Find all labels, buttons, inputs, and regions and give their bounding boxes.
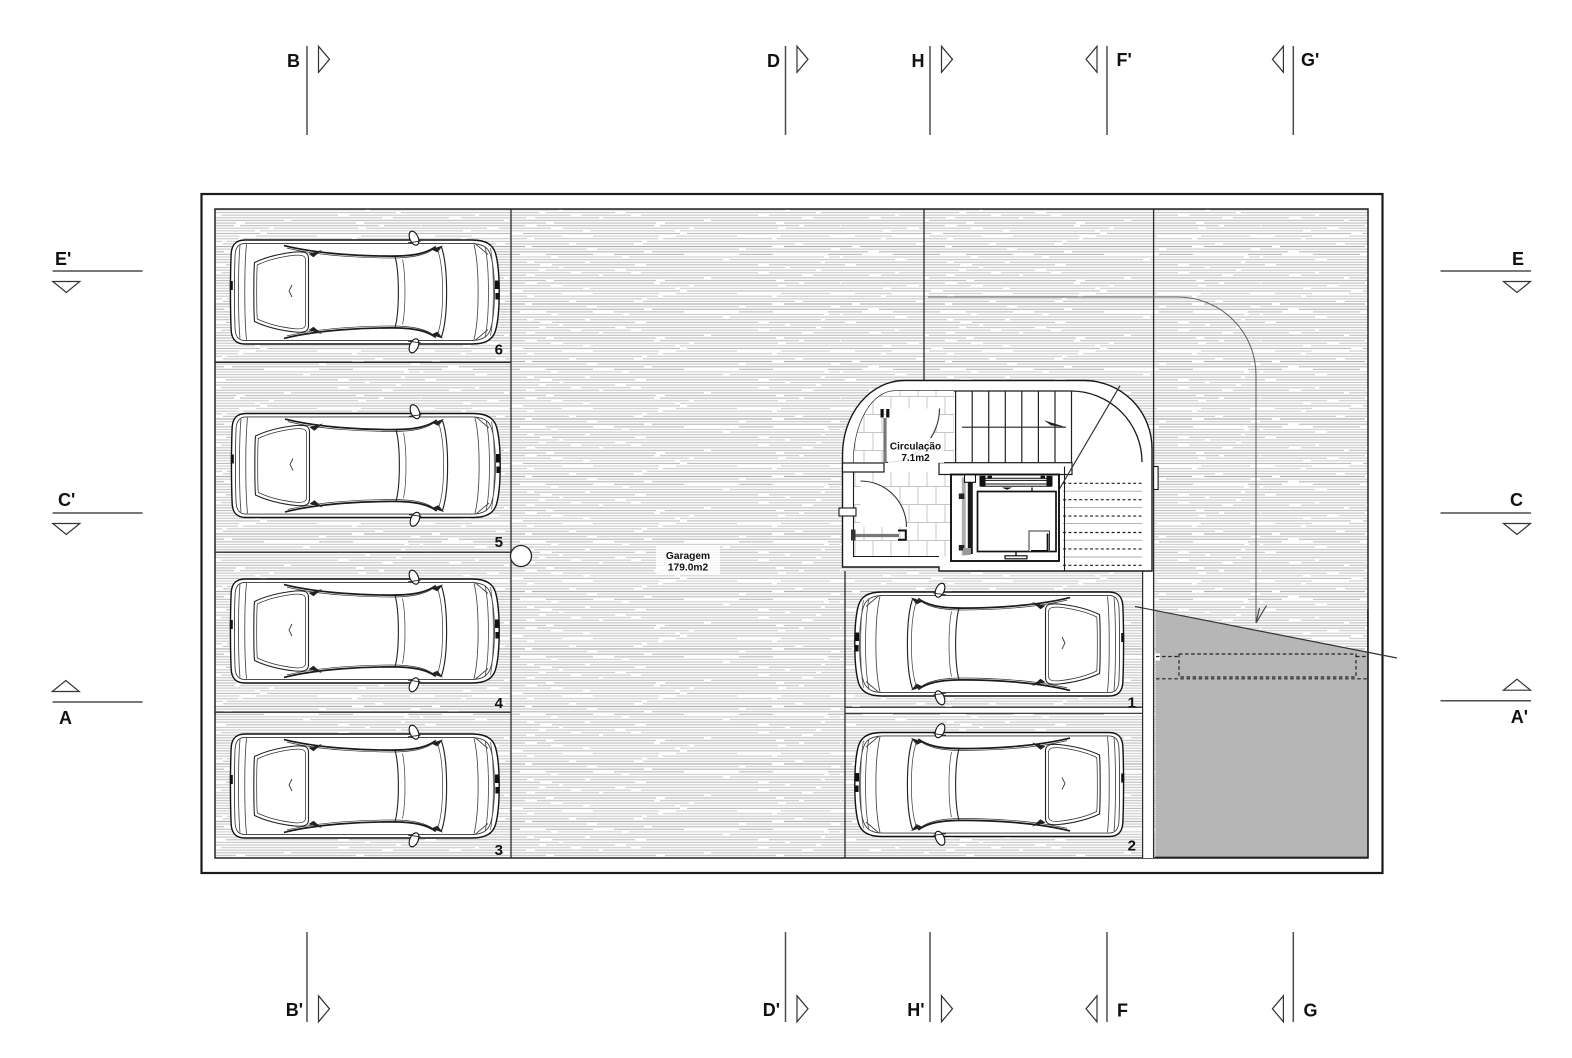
svg-text:179.0m2: 179.0m2 xyxy=(668,563,709,574)
svg-text:Circulação: Circulação xyxy=(890,442,941,453)
svg-text:1: 1 xyxy=(1128,695,1136,712)
svg-text:B': B' xyxy=(286,1000,303,1020)
svg-text:A: A xyxy=(59,708,72,728)
svg-text:G': G' xyxy=(1301,50,1319,70)
svg-text:D: D xyxy=(767,51,780,71)
svg-text:2: 2 xyxy=(1128,838,1136,855)
svg-text:D': D' xyxy=(763,1000,780,1020)
svg-text:E: E xyxy=(1512,249,1524,269)
svg-text:H: H xyxy=(912,51,925,71)
svg-text:7.1m2: 7.1m2 xyxy=(901,453,930,464)
svg-text:A': A' xyxy=(1511,707,1528,727)
svg-text:H': H' xyxy=(907,1000,924,1020)
svg-text:3: 3 xyxy=(495,842,503,859)
svg-text:B: B xyxy=(287,51,300,71)
svg-text:F: F xyxy=(1117,1001,1128,1021)
svg-text:C': C' xyxy=(58,490,75,510)
svg-text:6: 6 xyxy=(495,342,503,359)
svg-text:F': F' xyxy=(1117,50,1132,70)
svg-text:C: C xyxy=(1510,490,1523,510)
svg-text:4: 4 xyxy=(495,695,504,712)
svg-text:G: G xyxy=(1304,1001,1318,1021)
svg-text:E': E' xyxy=(55,249,71,269)
svg-text:Garagem: Garagem xyxy=(666,551,710,562)
svg-text:5: 5 xyxy=(495,534,503,551)
